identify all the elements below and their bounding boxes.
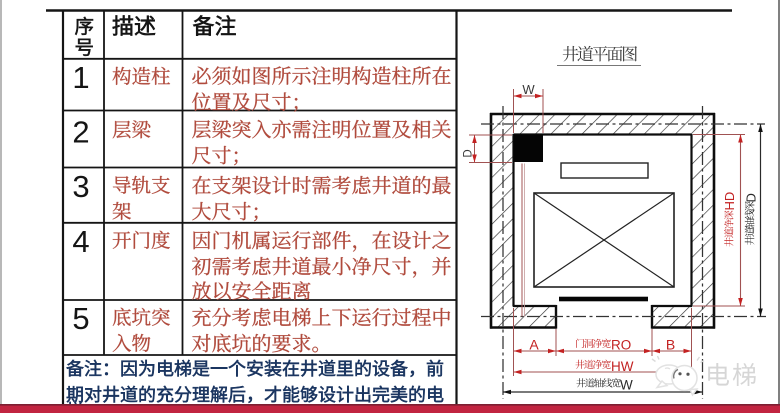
svg-text:A: A: [529, 337, 539, 353]
svg-text:4: 4: [72, 224, 89, 259]
svg-text:3: 3: [72, 169, 89, 204]
svg-text:D: D: [463, 149, 475, 157]
svg-text:W: W: [620, 378, 633, 393]
svg-text:HD: HD: [722, 192, 737, 211]
svg-text:RO: RO: [611, 338, 631, 353]
svg-text:1: 1: [72, 60, 89, 95]
svg-text:D: D: [744, 193, 759, 202]
svg-text:B: B: [666, 337, 675, 353]
svg-text:HW: HW: [611, 359, 634, 374]
svg-text:2: 2: [72, 115, 89, 150]
svg-text:5: 5: [72, 301, 89, 336]
svg-text:W: W: [522, 82, 535, 97]
